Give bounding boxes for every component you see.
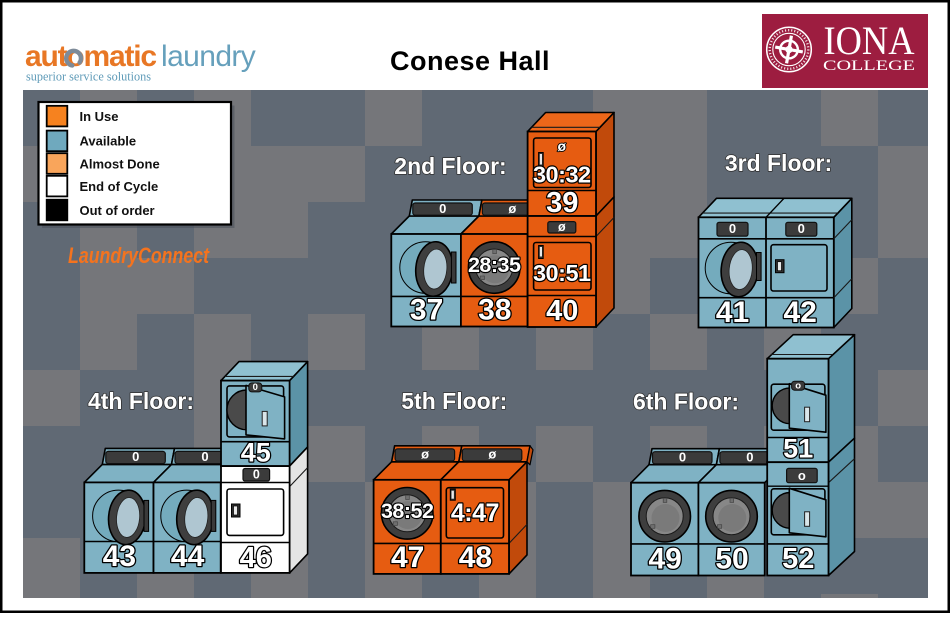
svg-text:IONA: IONA [824, 18, 915, 63]
svg-text:o: o [795, 380, 801, 391]
svg-text:superior service solutions: superior service solutions [26, 69, 151, 84]
svg-text:0: 0 [201, 449, 208, 464]
svg-text:0: 0 [746, 450, 753, 465]
svg-text:4:47: 4:47 [451, 499, 499, 527]
svg-text:37: 37 [410, 294, 443, 327]
svg-text:ø: ø [508, 201, 516, 216]
svg-text:40: 40 [546, 295, 578, 327]
svg-text:0: 0 [679, 450, 686, 465]
svg-text:COLLEGE: COLLEGE [823, 58, 915, 74]
svg-text:43: 43 [103, 540, 136, 573]
svg-text:laundry: laundry [161, 40, 256, 73]
svg-text:ø: ø [421, 447, 429, 462]
svg-text:0: 0 [798, 221, 805, 236]
svg-text:0: 0 [253, 382, 258, 393]
svg-text:2nd Floor:: 2nd Floor: [394, 153, 506, 179]
svg-text:LaundryConnect: LaundryConnect [68, 243, 210, 268]
svg-text:48: 48 [459, 541, 492, 574]
svg-text:38: 38 [478, 294, 511, 327]
svg-text:ø: ø [558, 220, 566, 234]
svg-text:30:51: 30:51 [533, 260, 591, 286]
svg-text:5th Floor:: 5th Floor: [401, 388, 507, 414]
svg-text:Almost Done: Almost Done [80, 156, 160, 171]
svg-text:47: 47 [391, 541, 424, 574]
svg-text:3rd Floor:: 3rd Floor: [725, 150, 832, 176]
svg-text:28:35: 28:35 [468, 253, 521, 277]
svg-text:51: 51 [783, 434, 813, 464]
svg-text:0: 0 [729, 221, 736, 236]
svg-text:In Use: In Use [80, 109, 119, 124]
svg-text:49: 49 [649, 543, 682, 576]
svg-text:44: 44 [171, 540, 205, 573]
svg-text:38:52: 38:52 [381, 499, 434, 523]
svg-text:39: 39 [546, 187, 578, 219]
svg-text:ø: ø [488, 447, 496, 462]
svg-text:Conese Hall: Conese Hall [390, 46, 550, 76]
svg-text:50: 50 [715, 543, 748, 576]
svg-text:45: 45 [241, 438, 271, 468]
svg-text:52: 52 [782, 543, 814, 575]
svg-text:42: 42 [784, 296, 817, 329]
svg-text:41: 41 [716, 296, 749, 329]
svg-text:30:32: 30:32 [533, 162, 591, 188]
svg-text:Available: Available [80, 134, 137, 149]
svg-text:End of Cycle: End of Cycle [80, 179, 159, 194]
svg-text:46: 46 [240, 542, 272, 574]
svg-text:0: 0 [253, 468, 260, 482]
svg-text:0: 0 [439, 201, 446, 216]
svg-text:6th Floor:: 6th Floor: [633, 389, 739, 415]
svg-text:0: 0 [132, 449, 139, 464]
svg-text:Out of order: Out of order [80, 203, 155, 218]
svg-text:o: o [798, 468, 806, 483]
svg-text:ø: ø [558, 138, 567, 154]
svg-text:4th Floor:: 4th Floor: [88, 388, 194, 414]
